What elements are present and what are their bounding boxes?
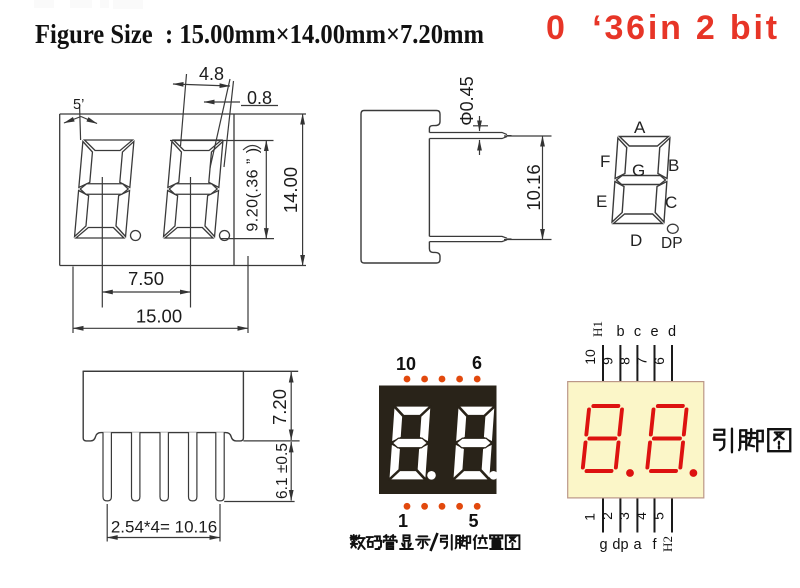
svg-text:5’: 5’	[73, 97, 84, 113]
svg-text:7: 7	[634, 357, 650, 365]
svg-text:Φ0.45: Φ0.45	[457, 76, 477, 125]
svg-text:2: 2	[599, 512, 615, 520]
svg-text:dp: dp	[612, 537, 628, 553]
svg-text:1: 1	[581, 513, 597, 521]
svg-text:0 ‘36in 2 bit: 0 ‘36in 2 bit	[546, 9, 780, 47]
svg-text:g: g	[599, 537, 607, 553]
svg-text:7.50: 7.50	[128, 268, 164, 289]
svg-text:9: 9	[599, 357, 615, 365]
svg-text:a: a	[633, 537, 642, 553]
svg-text:b: b	[616, 324, 624, 340]
svg-text:4: 4	[633, 512, 649, 520]
svg-text:10: 10	[582, 349, 598, 365]
svg-text:2.54*4= 10.16: 2.54*4= 10.16	[111, 518, 217, 537]
svg-text:5: 5	[468, 511, 478, 531]
svg-text:A: A	[634, 118, 646, 137]
svg-text:D: D	[630, 231, 642, 250]
svg-text:e: e	[650, 324, 658, 340]
svg-text:F: F	[600, 152, 610, 171]
svg-text:4.8: 4.8	[199, 64, 224, 84]
svg-text:6: 6	[651, 357, 667, 365]
svg-text:Figure Size : 15.00mm×14.00mm: Figure Size : 15.00mm×14.00mm×7.20mm	[35, 19, 484, 49]
svg-text:7.20: 7.20	[269, 389, 290, 425]
svg-text:H1: H1	[590, 321, 605, 337]
svg-text:15.00: 15.00	[136, 306, 182, 327]
svg-text:1: 1	[398, 511, 408, 531]
svg-text:3: 3	[616, 512, 632, 520]
svg-text:d: d	[668, 324, 676, 340]
svg-text:6: 6	[472, 353, 482, 373]
svg-text:5: 5	[650, 512, 666, 520]
svg-text:G: G	[632, 161, 645, 180]
svg-text:8: 8	[616, 357, 632, 365]
svg-text:C: C	[665, 193, 677, 212]
svg-text:DP: DP	[661, 235, 683, 252]
svg-text:B: B	[668, 156, 679, 175]
svg-text:H2: H2	[660, 536, 675, 552]
svg-text:10.16: 10.16	[523, 164, 544, 210]
svg-text:9.20(.36 ” ): 9.20(.36 ” )	[245, 147, 262, 231]
svg-text:c: c	[634, 324, 641, 340]
svg-text:10: 10	[396, 354, 416, 374]
svg-text:E: E	[596, 192, 607, 211]
svg-text:14.00: 14.00	[280, 167, 301, 213]
svg-text:6.1 ±0.5: 6.1 ±0.5	[274, 443, 291, 499]
